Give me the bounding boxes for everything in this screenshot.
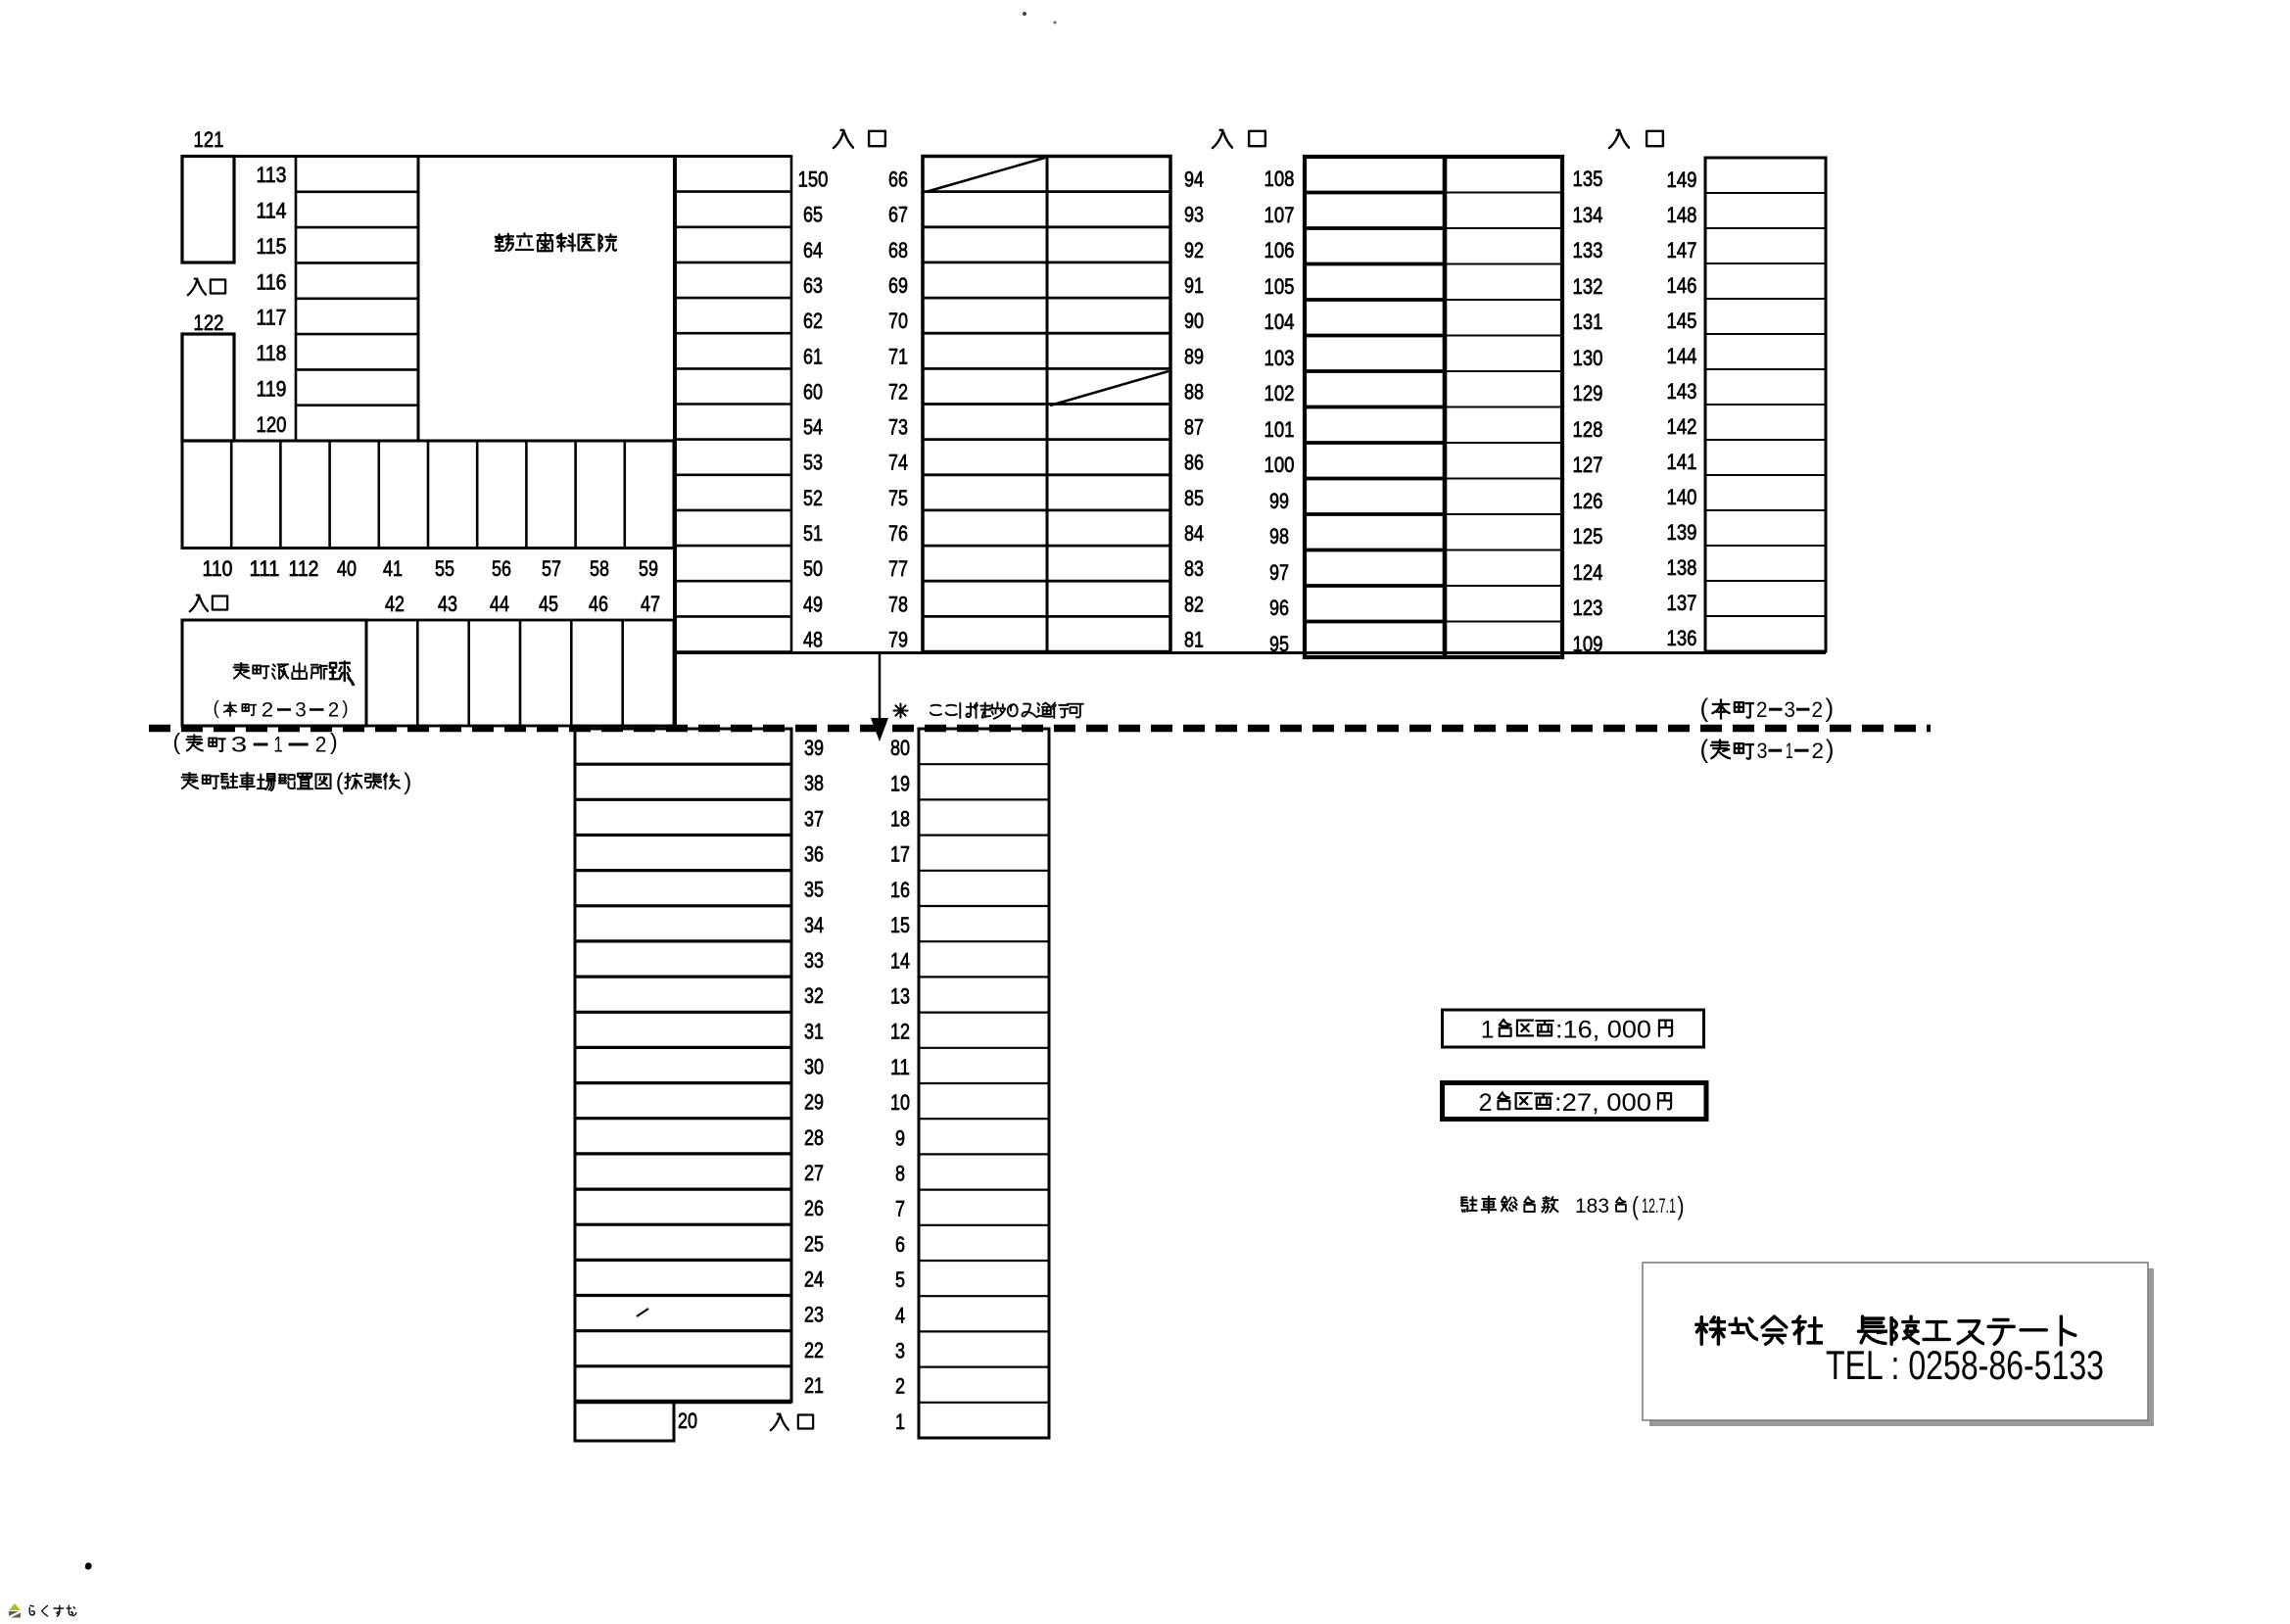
svg-text:122: 122 xyxy=(194,310,224,335)
svg-text::16, 000: :16, 000 xyxy=(1555,1017,1651,1044)
svg-text:8: 8 xyxy=(895,1162,905,1186)
svg-text:47: 47 xyxy=(641,592,660,616)
svg-text:17: 17 xyxy=(890,842,910,867)
svg-text:14: 14 xyxy=(890,948,910,973)
svg-text:125: 125 xyxy=(1573,524,1603,549)
svg-text:144: 144 xyxy=(1667,344,1697,368)
svg-text:12.7.1: 12.7.1 xyxy=(1642,1195,1676,1218)
svg-text:2: 2 xyxy=(1756,697,1768,722)
svg-text:107: 107 xyxy=(1264,203,1295,227)
svg-text:62: 62 xyxy=(803,309,823,333)
svg-text:149: 149 xyxy=(1667,167,1697,192)
svg-text:99: 99 xyxy=(1269,489,1289,513)
svg-text:134: 134 xyxy=(1573,203,1603,227)
svg-text:55: 55 xyxy=(435,556,454,581)
svg-text:56: 56 xyxy=(492,556,511,581)
svg-text:148: 148 xyxy=(1667,203,1697,227)
svg-text:57: 57 xyxy=(542,556,561,581)
svg-text:11: 11 xyxy=(890,1055,910,1079)
svg-text:105: 105 xyxy=(1264,274,1295,299)
svg-text:3: 3 xyxy=(295,699,307,722)
svg-text:52: 52 xyxy=(803,486,823,510)
svg-text:21: 21 xyxy=(804,1373,824,1398)
svg-text:83: 83 xyxy=(1184,556,1204,581)
svg-text:29: 29 xyxy=(804,1090,824,1115)
svg-text:2: 2 xyxy=(1812,697,1824,722)
svg-text:43: 43 xyxy=(438,592,457,616)
svg-text:51: 51 xyxy=(803,521,823,546)
svg-text:146: 146 xyxy=(1667,273,1697,298)
svg-text:80: 80 xyxy=(890,736,910,760)
svg-text:48: 48 xyxy=(803,627,823,651)
svg-text:31: 31 xyxy=(804,1019,824,1043)
svg-text:85: 85 xyxy=(1184,486,1204,510)
svg-text:37: 37 xyxy=(804,806,824,831)
svg-text:86: 86 xyxy=(1184,451,1204,475)
svg-text:25: 25 xyxy=(804,1231,824,1256)
svg-text:183: 183 xyxy=(1575,1195,1609,1218)
svg-text:75: 75 xyxy=(888,486,908,510)
svg-text:58: 58 xyxy=(590,556,609,581)
svg-text:147: 147 xyxy=(1667,238,1697,263)
svg-text:(: ( xyxy=(173,729,181,754)
svg-text:41: 41 xyxy=(383,556,403,581)
svg-text:92: 92 xyxy=(1184,238,1204,263)
svg-text:132: 132 xyxy=(1573,274,1603,299)
svg-text:114: 114 xyxy=(257,199,287,223)
svg-text:39: 39 xyxy=(804,736,824,760)
svg-text:127: 127 xyxy=(1573,453,1603,477)
svg-text:72: 72 xyxy=(888,379,908,404)
svg-text:66: 66 xyxy=(888,167,908,192)
svg-text:115: 115 xyxy=(257,234,287,259)
svg-text:65: 65 xyxy=(803,203,823,227)
svg-text:145: 145 xyxy=(1667,309,1697,333)
svg-text:40: 40 xyxy=(337,556,357,581)
svg-text:113: 113 xyxy=(257,163,287,187)
svg-text:116: 116 xyxy=(257,269,287,294)
svg-text:117: 117 xyxy=(257,306,287,330)
svg-text:26: 26 xyxy=(804,1196,824,1220)
svg-text:139: 139 xyxy=(1667,520,1697,545)
svg-text:101: 101 xyxy=(1264,417,1295,442)
svg-text:3: 3 xyxy=(1785,697,1796,722)
svg-text:18: 18 xyxy=(890,807,910,832)
svg-text:97: 97 xyxy=(1269,560,1289,585)
svg-text:121: 121 xyxy=(194,127,224,152)
svg-text:27: 27 xyxy=(804,1161,824,1185)
svg-text:73: 73 xyxy=(888,415,908,440)
svg-text:123: 123 xyxy=(1573,596,1603,620)
svg-text:20: 20 xyxy=(678,1409,697,1433)
svg-text:34: 34 xyxy=(804,913,824,937)
svg-text:9: 9 xyxy=(895,1125,905,1150)
svg-text:46: 46 xyxy=(589,592,608,616)
svg-text:89: 89 xyxy=(1184,344,1204,368)
svg-text:49: 49 xyxy=(803,592,823,616)
svg-text:140: 140 xyxy=(1667,485,1697,509)
svg-text:32: 32 xyxy=(804,983,824,1008)
svg-text:): ) xyxy=(342,698,348,719)
svg-text:5: 5 xyxy=(895,1267,905,1292)
svg-text:69: 69 xyxy=(888,273,908,298)
svg-text:(: ( xyxy=(1700,693,1709,723)
svg-text:59: 59 xyxy=(639,556,658,581)
svg-text:88: 88 xyxy=(1184,379,1204,404)
svg-text:112: 112 xyxy=(289,556,319,581)
svg-text:108: 108 xyxy=(1264,167,1295,191)
svg-text:110: 110 xyxy=(203,556,233,581)
svg-text:50: 50 xyxy=(803,556,823,581)
svg-text:102: 102 xyxy=(1264,381,1295,406)
svg-text:79: 79 xyxy=(888,627,908,651)
svg-text:91: 91 xyxy=(1184,273,1204,298)
svg-text:93: 93 xyxy=(1184,203,1204,227)
svg-text:): ) xyxy=(1826,735,1835,764)
svg-text:24: 24 xyxy=(804,1266,824,1291)
svg-text:78: 78 xyxy=(888,592,908,616)
svg-text:71: 71 xyxy=(888,344,908,368)
svg-text:1: 1 xyxy=(273,732,282,756)
svg-text:12: 12 xyxy=(890,1020,910,1044)
svg-text:131: 131 xyxy=(1573,310,1603,334)
svg-text:76: 76 xyxy=(888,521,908,546)
svg-text:81: 81 xyxy=(1184,627,1204,651)
svg-text:54: 54 xyxy=(803,415,823,440)
svg-text:100: 100 xyxy=(1264,453,1295,477)
svg-text:128: 128 xyxy=(1573,417,1603,442)
svg-text:2: 2 xyxy=(1812,739,1825,763)
svg-text:10: 10 xyxy=(890,1090,910,1115)
svg-text:135: 135 xyxy=(1573,167,1603,191)
svg-text:3: 3 xyxy=(1757,739,1768,763)
svg-text:126: 126 xyxy=(1573,489,1603,513)
svg-text:44: 44 xyxy=(490,592,509,616)
svg-text:82: 82 xyxy=(1184,592,1204,616)
svg-text:61: 61 xyxy=(803,344,823,368)
svg-text:35: 35 xyxy=(804,878,824,902)
svg-text:96: 96 xyxy=(1269,596,1289,620)
svg-text:106: 106 xyxy=(1264,238,1295,263)
svg-text:1: 1 xyxy=(1786,739,1793,763)
svg-text:129: 129 xyxy=(1573,381,1603,406)
svg-text:2: 2 xyxy=(262,699,274,722)
svg-text:45: 45 xyxy=(539,592,558,616)
svg-text:13: 13 xyxy=(890,984,910,1009)
svg-text:38: 38 xyxy=(804,771,824,795)
svg-text:): ) xyxy=(1678,1191,1685,1220)
svg-text:30: 30 xyxy=(804,1055,824,1079)
svg-text:2: 2 xyxy=(328,699,340,722)
svg-text:77: 77 xyxy=(888,556,908,581)
svg-text:130: 130 xyxy=(1573,346,1603,370)
svg-text:3: 3 xyxy=(231,732,248,756)
svg-text:68: 68 xyxy=(888,238,908,263)
svg-text:74: 74 xyxy=(888,451,908,475)
svg-text:36: 36 xyxy=(804,842,824,867)
svg-text:94: 94 xyxy=(1184,167,1204,192)
svg-text:7: 7 xyxy=(895,1197,905,1221)
svg-text:22: 22 xyxy=(804,1338,824,1362)
svg-text:141: 141 xyxy=(1667,450,1697,474)
svg-text:60: 60 xyxy=(803,379,823,404)
svg-text:28: 28 xyxy=(804,1125,824,1150)
svg-text:TEL : 0258-86-5133: TEL : 0258-86-5133 xyxy=(1826,1342,2104,1388)
svg-text:136: 136 xyxy=(1667,626,1697,650)
svg-text:1: 1 xyxy=(895,1409,905,1434)
svg-text:53: 53 xyxy=(803,451,823,475)
svg-text:150: 150 xyxy=(798,167,829,192)
svg-text:87: 87 xyxy=(1184,415,1204,440)
svg-text:(: ( xyxy=(336,769,344,795)
svg-text:104: 104 xyxy=(1264,310,1295,334)
svg-text:23: 23 xyxy=(804,1303,824,1327)
svg-text:2: 2 xyxy=(315,732,327,756)
svg-text:42: 42 xyxy=(385,592,405,616)
svg-text:111: 111 xyxy=(250,556,280,581)
svg-text:143: 143 xyxy=(1667,379,1697,404)
svg-text:(: ( xyxy=(1700,735,1709,764)
svg-text:1: 1 xyxy=(1481,1017,1495,1044)
svg-text:142: 142 xyxy=(1667,414,1697,439)
svg-text:98: 98 xyxy=(1269,524,1289,549)
svg-text:): ) xyxy=(330,729,338,754)
svg-text:70: 70 xyxy=(888,309,908,333)
svg-text:84: 84 xyxy=(1184,521,1204,546)
svg-text:16: 16 xyxy=(890,878,910,902)
svg-text:15: 15 xyxy=(890,913,910,937)
svg-text:19: 19 xyxy=(890,771,910,795)
svg-text:(: ( xyxy=(214,698,220,719)
svg-text:): ) xyxy=(1826,693,1835,723)
svg-text:133: 133 xyxy=(1573,238,1603,263)
svg-text:124: 124 xyxy=(1573,560,1603,585)
svg-text::27, 000: :27, 000 xyxy=(1554,1089,1651,1117)
svg-text:103: 103 xyxy=(1264,346,1295,370)
svg-text:6: 6 xyxy=(895,1232,905,1257)
svg-text:138: 138 xyxy=(1667,555,1697,580)
svg-text:33: 33 xyxy=(804,948,824,973)
svg-text:4: 4 xyxy=(895,1303,905,1327)
svg-text:(: ( xyxy=(1632,1191,1639,1220)
svg-text:2: 2 xyxy=(1479,1089,1493,1117)
svg-text:2: 2 xyxy=(895,1374,905,1399)
svg-text:): ) xyxy=(404,769,411,795)
svg-text:119: 119 xyxy=(257,376,287,401)
svg-text:90: 90 xyxy=(1184,309,1204,333)
svg-text:63: 63 xyxy=(803,273,823,298)
svg-text:118: 118 xyxy=(257,341,287,365)
svg-text:67: 67 xyxy=(888,203,908,227)
svg-text:3: 3 xyxy=(895,1339,905,1363)
svg-text:137: 137 xyxy=(1667,591,1697,615)
svg-text:120: 120 xyxy=(257,412,287,437)
svg-text:64: 64 xyxy=(803,238,823,263)
